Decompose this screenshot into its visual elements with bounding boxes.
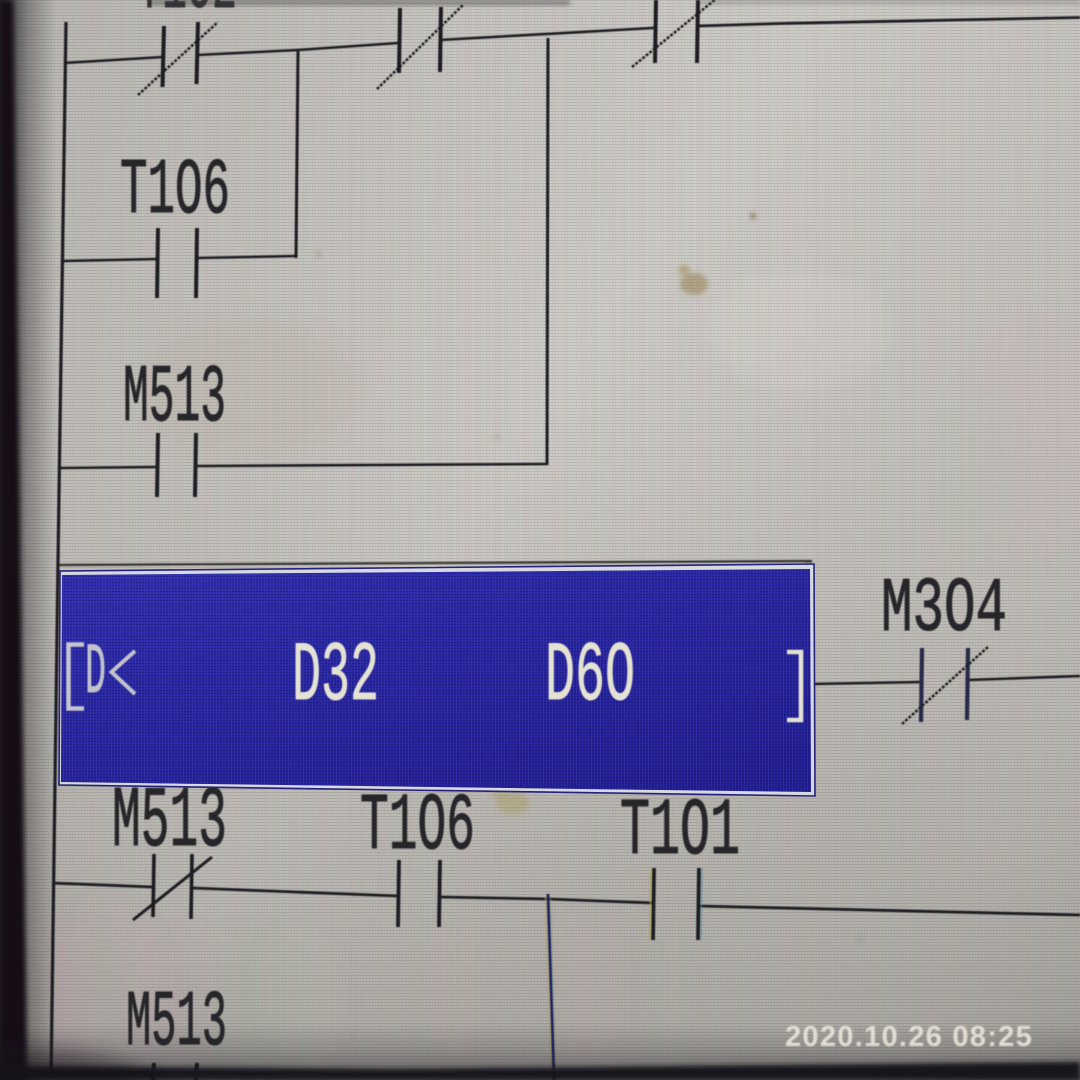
svg-text:D: D <box>85 632 106 714</box>
svg-text:2020.10.26 08:25: 2020.10.26 08:25 <box>785 1021 1033 1053</box>
svg-text:T1O1: T1O1 <box>620 787 740 878</box>
svg-text:M3O4: M3O4 <box>881 567 1007 654</box>
svg-text:T1O6: T1O6 <box>120 146 230 236</box>
svg-text:D32: D32 <box>292 630 379 725</box>
svg-text:T1O6: T1O6 <box>360 782 475 873</box>
svg-text:D6O: D6O <box>545 630 635 725</box>
svg-text:M513: M513 <box>123 352 226 445</box>
